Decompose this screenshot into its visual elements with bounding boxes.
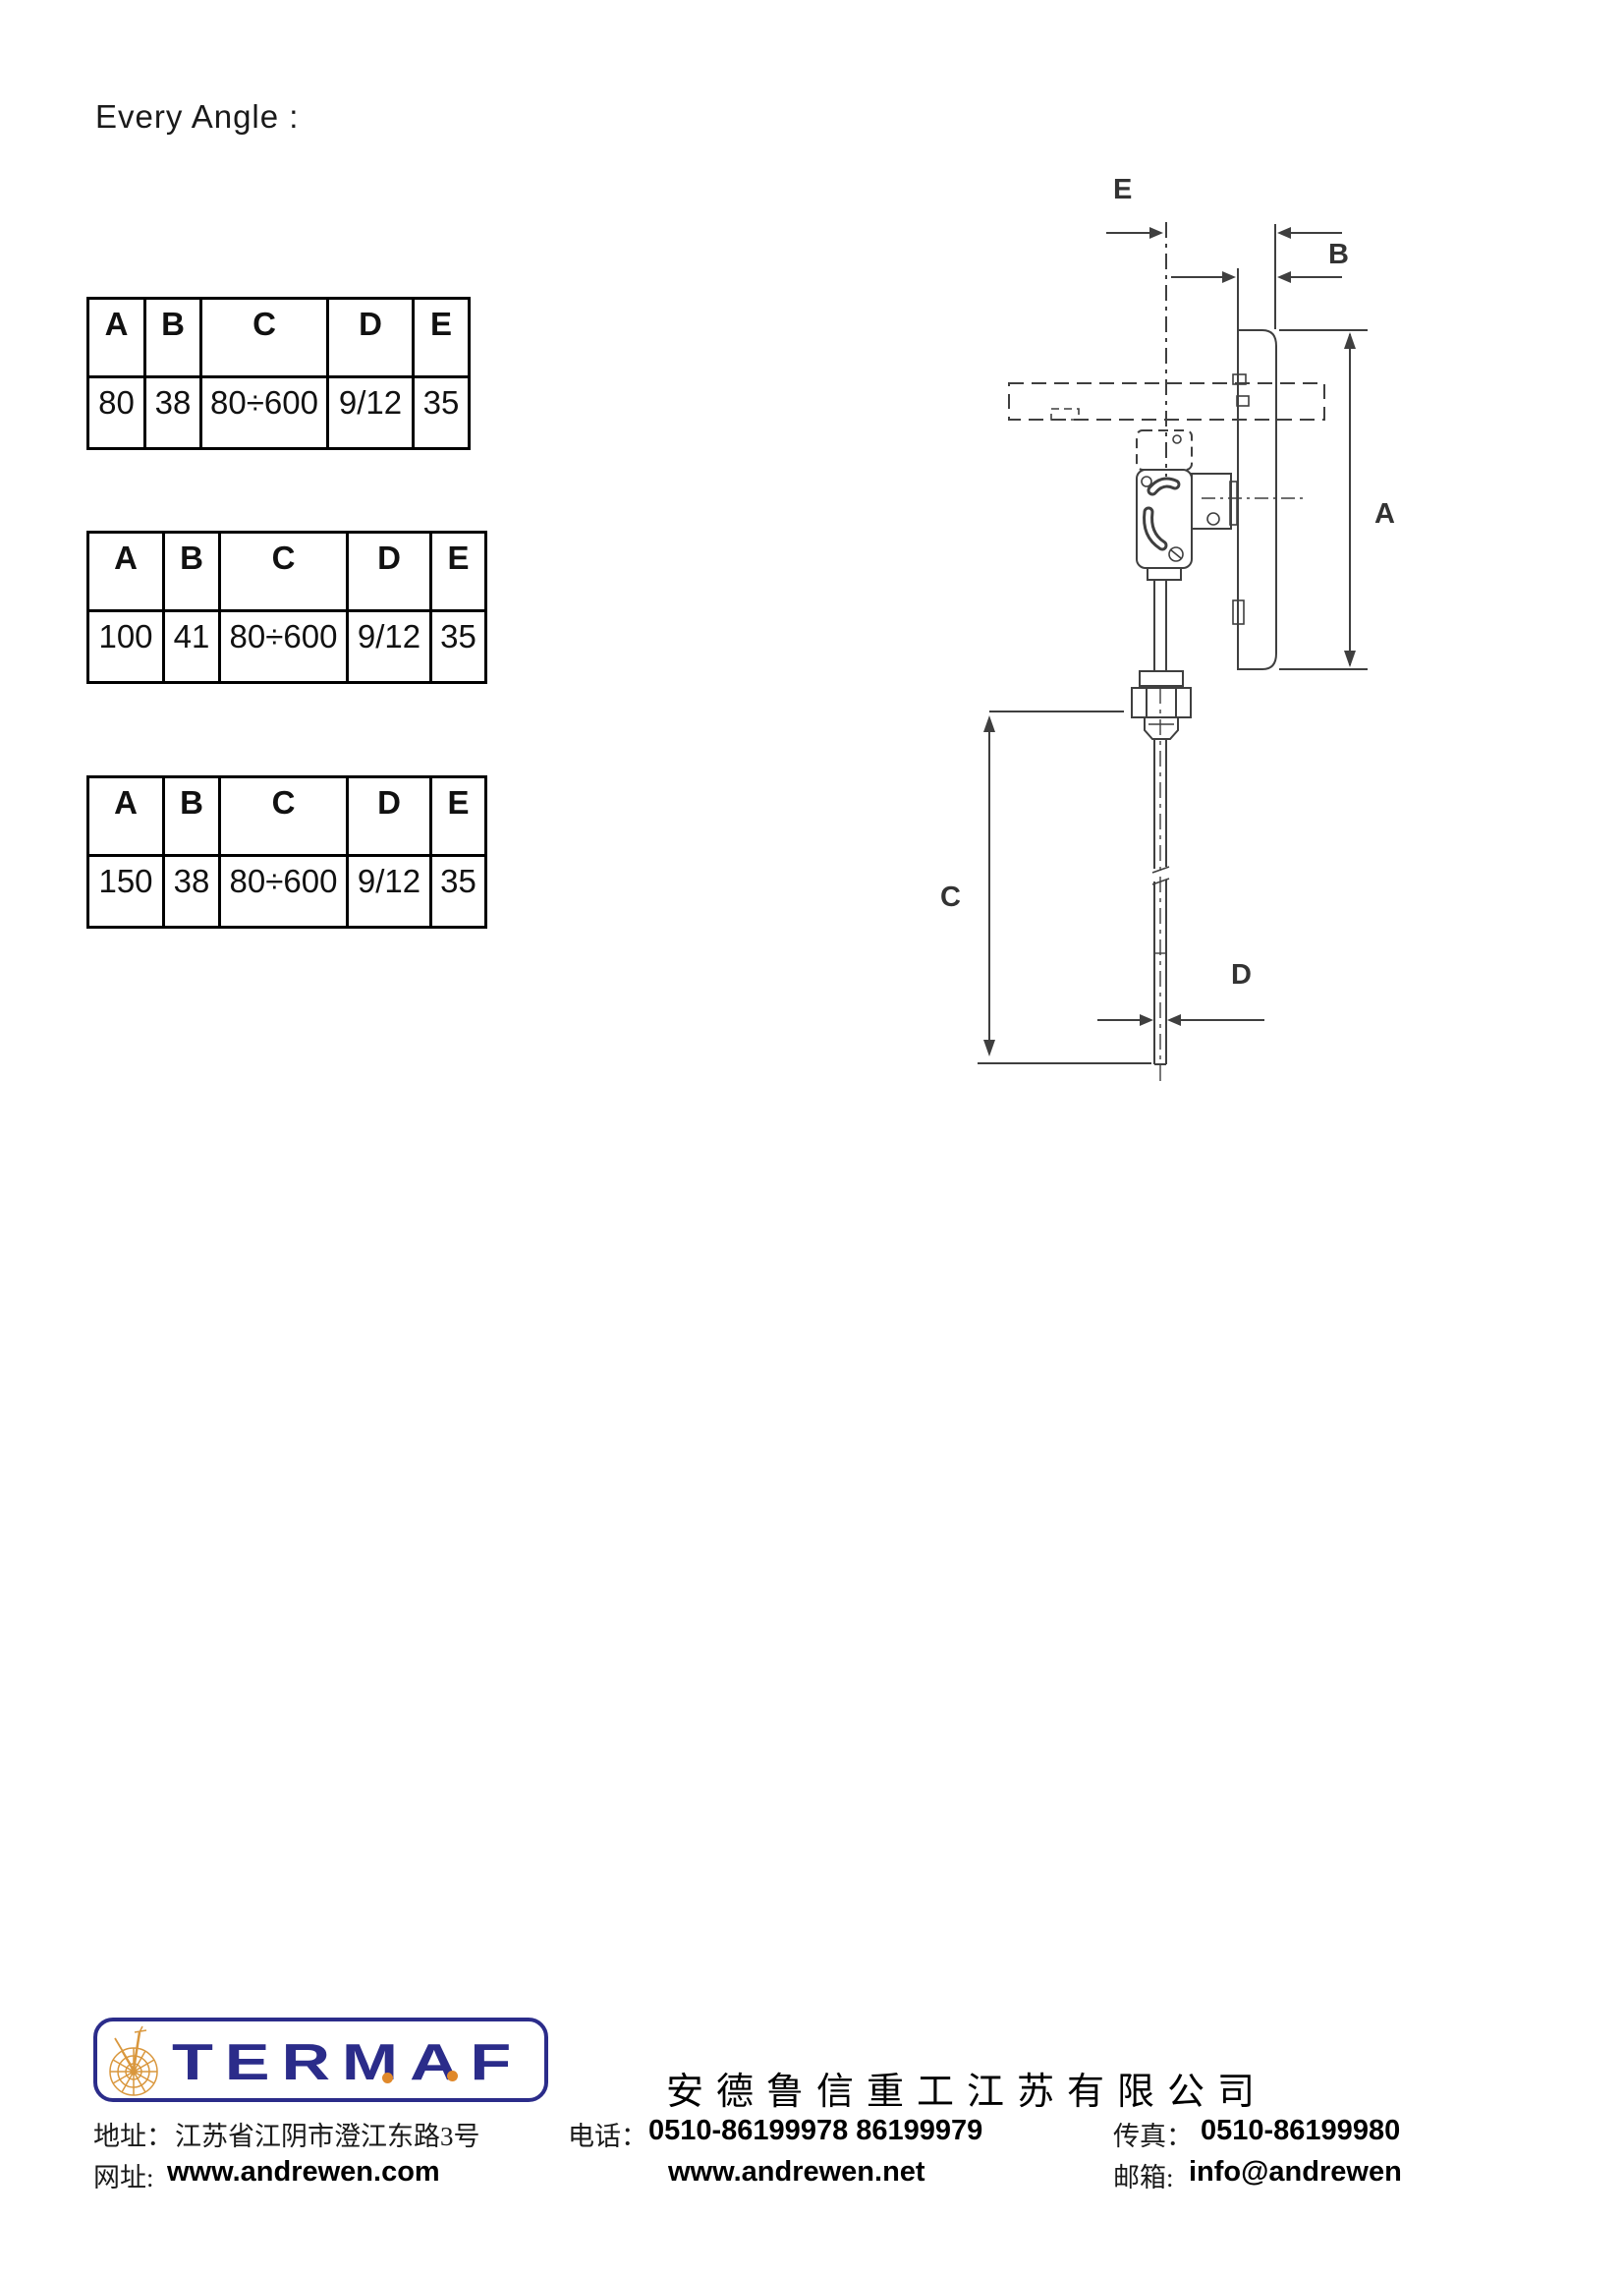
cell: 100: [88, 611, 164, 683]
col-header: A: [88, 777, 164, 856]
document-page: Every Angle : A B C D E 80 38 80÷600 9/1…: [0, 0, 1624, 2276]
cell: 80÷600: [201, 377, 328, 449]
dim-label-b: B: [1328, 239, 1349, 270]
footer-line-web: 网址: www.andrewen.com www.andrewen.net 邮箱…: [0, 2156, 1624, 2195]
termaf-logo: TERMAF: [93, 2018, 548, 2102]
col-header: D: [348, 777, 431, 856]
cell: 80÷600: [220, 611, 348, 683]
col-header: E: [431, 533, 486, 611]
cell: 80: [88, 377, 145, 449]
logo-dot-a: [447, 2071, 458, 2081]
spec-table-2: A B C D E 100 41 80÷600 9/12 35: [86, 531, 487, 684]
page-title: Every Angle :: [95, 98, 299, 136]
fax-label: 传真：: [1113, 2115, 1193, 2153]
col-header: A: [88, 533, 164, 611]
fax-value: 0510-86199980: [1201, 2115, 1400, 2147]
email-value[interactable]: info@andrewen: [1189, 2156, 1402, 2189]
website-label: 网址:: [93, 2156, 154, 2194]
col-header: E: [431, 777, 486, 856]
cell: 38: [145, 377, 201, 449]
footer-line-contact: 地址： 江苏省江阴市澄江东路3号 电话： 0510-86199978 86199…: [0, 2115, 1624, 2154]
email-label: 邮箱:: [1113, 2156, 1174, 2194]
col-header: B: [145, 299, 201, 377]
table-row: 100 41 80÷600 9/12 35: [88, 611, 486, 683]
cell: 35: [414, 377, 470, 449]
table-header-row: A B C D E: [88, 299, 470, 377]
cell: 35: [431, 856, 486, 928]
cell: 9/12: [348, 856, 431, 928]
dim-label-d: D: [1231, 959, 1252, 991]
cell: 41: [164, 611, 220, 683]
cell: 9/12: [348, 611, 431, 683]
spec-table-3: A B C D E 150 38 80÷600 9/12 35: [86, 775, 487, 929]
table-row: 80 38 80÷600 9/12 35: [88, 377, 470, 449]
company-name: 安德鲁信重工江苏有限公司: [666, 2061, 1267, 2115]
col-header: A: [88, 299, 145, 377]
dim-label-a: A: [1374, 498, 1395, 530]
col-header: C: [220, 777, 348, 856]
logo-dot-m: [382, 2073, 393, 2083]
table-header-row: A B C D E: [88, 777, 486, 856]
website-secondary[interactable]: www.andrewen.net: [668, 2156, 925, 2189]
cell: 80÷600: [220, 856, 348, 928]
col-header: C: [201, 299, 328, 377]
address-value: 江苏省江阴市澄江东路3号: [175, 2115, 480, 2153]
col-header: D: [328, 299, 414, 377]
cell: 9/12: [328, 377, 414, 449]
col-header: E: [414, 299, 470, 377]
col-header: B: [164, 777, 220, 856]
cell: 150: [88, 856, 164, 928]
address-label: 地址：: [93, 2115, 173, 2153]
col-header: B: [164, 533, 220, 611]
thermometer-technical-drawing: E B A C D: [914, 138, 1444, 1140]
col-header: D: [348, 533, 431, 611]
col-header: C: [220, 533, 348, 611]
table-row: 150 38 80÷600 9/12 35: [88, 856, 486, 928]
cell: 38: [164, 856, 220, 928]
spec-table-1: A B C D E 80 38 80÷600 9/12 35: [86, 297, 471, 450]
phone-label: 电话：: [568, 2115, 647, 2153]
dim-label-c: C: [940, 882, 961, 913]
fan-coil-icon: [107, 2024, 164, 2101]
cell: 35: [431, 611, 486, 683]
phone-value: 0510-86199978 86199979: [648, 2115, 982, 2147]
website-primary[interactable]: www.andrewen.com: [167, 2156, 440, 2189]
table-header-row: A B C D E: [88, 533, 486, 611]
logo-wordmark: TERMAF: [172, 2033, 523, 2092]
dim-label-e: E: [1113, 174, 1132, 205]
